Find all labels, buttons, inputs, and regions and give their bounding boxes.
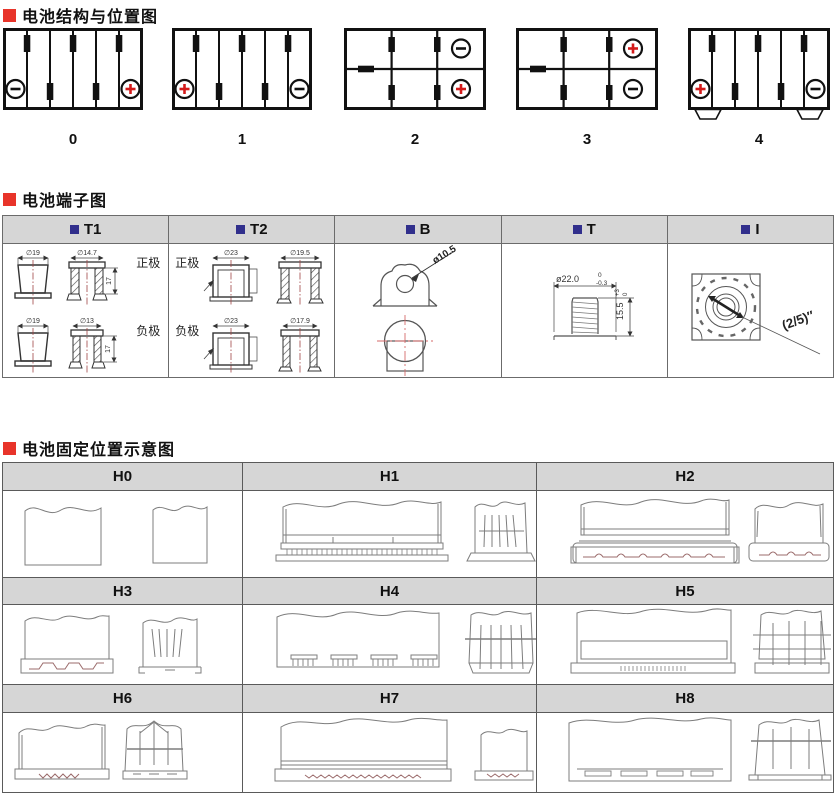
h0-drawing bbox=[3, 491, 242, 577]
svg-text:∅19: ∅19 bbox=[26, 318, 40, 325]
terminal-column-t1: T1 ∅19 ∅14.7 bbox=[3, 216, 169, 377]
t2-positive-post-drawing: ∅23 bbox=[201, 247, 267, 309]
battery-layout-3-drawing bbox=[516, 28, 658, 123]
holddown-header-h2: H2 bbox=[537, 463, 833, 491]
terminal-cell-i: (2/5)″ bbox=[668, 244, 833, 377]
terminal-header-b: B bbox=[335, 216, 500, 244]
battery-layout-figure-1: 1 bbox=[172, 28, 312, 148]
h4-drawing bbox=[243, 605, 536, 684]
b-terminal-drawing: ø10.5 bbox=[335, 244, 501, 380]
terminal-header-label: T2 bbox=[250, 221, 268, 238]
svg-text:+3: +3 bbox=[615, 288, 621, 296]
h1-drawing bbox=[243, 491, 536, 577]
figure-label: 0 bbox=[3, 131, 143, 148]
navy-square-bullet bbox=[236, 225, 245, 234]
h5-drawing bbox=[537, 605, 832, 684]
terminal-cell-b: ø10.5 bbox=[335, 244, 500, 377]
navy-square-bullet bbox=[573, 225, 582, 234]
holddown-header-h6: H6 bbox=[3, 685, 243, 713]
holddown-header-h8: H8 bbox=[537, 685, 833, 713]
svg-text:0: 0 bbox=[623, 292, 629, 296]
t-stud-drawing: ø22.0 0 -0.3 15.5 +3 0 bbox=[502, 244, 668, 380]
terminal-header-t: T bbox=[502, 216, 667, 244]
svg-text:∅19: ∅19 bbox=[26, 250, 40, 257]
terminal-header-i: I bbox=[668, 216, 833, 244]
pole-label-positive: 正极 bbox=[136, 254, 160, 271]
terminal-header-t1: T1 bbox=[3, 216, 168, 244]
holddown-header-h4: H4 bbox=[243, 578, 537, 605]
svg-text:(2/5)″: (2/5)″ bbox=[780, 307, 816, 332]
t2-negative-post-drawing: ∅23 bbox=[201, 315, 267, 377]
i-terminal-drawing: (2/5)″ bbox=[668, 244, 834, 380]
section-title-text: 电池固定位置示意图 bbox=[22, 436, 175, 460]
terminal-header-t2: T2 bbox=[169, 216, 334, 244]
section-title-text: 电池端子图 bbox=[22, 187, 107, 211]
holddown-cell-h6 bbox=[3, 713, 243, 792]
holddown-header-h0: H0 bbox=[3, 463, 243, 491]
svg-text:-0.3: -0.3 bbox=[596, 280, 608, 287]
holddown-header-h1: H1 bbox=[243, 463, 537, 491]
h2-drawing bbox=[537, 491, 832, 577]
terminal-column-i: I (2/5)″ bbox=[668, 216, 833, 377]
svg-text:17: 17 bbox=[105, 345, 112, 353]
t1-negative-post-drawing: ∅19 bbox=[9, 315, 57, 377]
svg-text:∅23: ∅23 bbox=[224, 250, 238, 257]
section-title-terminals: 电池端子图 bbox=[3, 187, 107, 211]
battery-layout-figure-4: 4 bbox=[685, 28, 833, 148]
battery-layout-figure-0: 0 bbox=[3, 28, 143, 148]
holddown-cell-h7 bbox=[243, 713, 537, 792]
terminal-table: T1 ∅19 ∅14.7 bbox=[2, 215, 834, 378]
h3-drawing bbox=[3, 605, 242, 684]
holddown-cell-h5 bbox=[537, 605, 833, 685]
t1-negative-bush-drawing: ∅13 17 bbox=[61, 315, 123, 377]
holddown-cell-h4 bbox=[243, 605, 537, 685]
h8-drawing bbox=[537, 713, 832, 791]
figure-label: 4 bbox=[685, 131, 833, 148]
t1-positive-bush-drawing: ∅14.7 17 bbox=[61, 247, 123, 309]
section-title-structure: 电池结构与位置图 bbox=[3, 3, 158, 27]
t2-negative-bush-drawing: ∅17.9 bbox=[273, 315, 327, 377]
svg-text:ø22.0: ø22.0 bbox=[556, 274, 579, 284]
figure-label: 3 bbox=[516, 131, 658, 148]
navy-square-bullet bbox=[70, 225, 79, 234]
battery-catalog-page: 电池结构与位置图 0 bbox=[0, 0, 836, 793]
terminal-cell-t1: ∅19 ∅14.7 bbox=[3, 244, 168, 377]
h6-drawing bbox=[3, 713, 242, 791]
holddown-cell-h1 bbox=[243, 491, 537, 578]
holddown-cell-h2 bbox=[537, 491, 833, 578]
pole-label-positive: 正极 bbox=[175, 254, 199, 271]
pole-label-negative: 负极 bbox=[136, 322, 160, 339]
terminal-column-t2: T2 正极 ∅23 bbox=[169, 216, 335, 377]
svg-text:∅17.9: ∅17.9 bbox=[290, 318, 310, 325]
battery-layout-2-drawing bbox=[344, 28, 486, 123]
t2-positive-bush-drawing: ∅19.5 bbox=[273, 247, 327, 309]
terminal-header-label: T bbox=[587, 221, 596, 238]
terminal-cell-t: ø22.0 0 -0.3 15.5 +3 0 bbox=[502, 244, 667, 377]
holddown-cell-h0 bbox=[3, 491, 243, 578]
navy-square-bullet bbox=[741, 225, 750, 234]
t1-positive-post-drawing: ∅19 bbox=[9, 247, 57, 309]
holddown-header-h3: H3 bbox=[3, 578, 243, 605]
holddown-grid: H0 H1 H2 bbox=[2, 462, 834, 793]
red-square-bullet bbox=[3, 9, 16, 22]
svg-text:∅13: ∅13 bbox=[80, 318, 94, 325]
svg-text:ø10.5: ø10.5 bbox=[431, 244, 459, 267]
section-title-text: 电池结构与位置图 bbox=[22, 3, 158, 27]
holddown-cell-h8 bbox=[537, 713, 833, 792]
pole-label-negative: 负极 bbox=[175, 322, 199, 339]
holddown-cell-h3 bbox=[3, 605, 243, 685]
terminal-header-label: T1 bbox=[84, 221, 102, 238]
holddown-header-h5: H5 bbox=[537, 578, 833, 605]
section-title-holddown: 电池固定位置示意图 bbox=[3, 436, 175, 460]
svg-text:∅14.7: ∅14.7 bbox=[77, 250, 97, 257]
navy-square-bullet bbox=[406, 225, 415, 234]
red-square-bullet bbox=[3, 193, 16, 206]
red-square-bullet bbox=[3, 442, 16, 455]
svg-text:∅19.5: ∅19.5 bbox=[290, 250, 310, 257]
figure-label: 1 bbox=[172, 131, 312, 148]
h7-drawing bbox=[243, 713, 536, 791]
figure-label: 2 bbox=[344, 131, 486, 148]
svg-text:15.5: 15.5 bbox=[615, 302, 625, 320]
battery-layout-figure-3: 3 bbox=[516, 28, 658, 148]
holddown-header-h7: H7 bbox=[243, 685, 537, 713]
terminal-header-label: B bbox=[420, 221, 431, 238]
svg-text:∅23: ∅23 bbox=[224, 318, 238, 325]
svg-text:17: 17 bbox=[106, 277, 113, 285]
svg-text:0: 0 bbox=[598, 272, 602, 279]
battery-layout-4-drawing bbox=[685, 28, 833, 123]
terminal-cell-t2: 正极 ∅23 ∅19.5 bbox=[169, 244, 334, 377]
terminal-column-t: T ø22 bbox=[502, 216, 668, 377]
battery-layout-1-drawing bbox=[172, 28, 312, 123]
battery-layout-figure-2: 2 bbox=[344, 28, 486, 148]
terminal-column-b: B ø10.5 bbox=[335, 216, 501, 377]
terminal-header-label: I bbox=[755, 221, 759, 238]
battery-layout-0-drawing bbox=[3, 28, 143, 123]
